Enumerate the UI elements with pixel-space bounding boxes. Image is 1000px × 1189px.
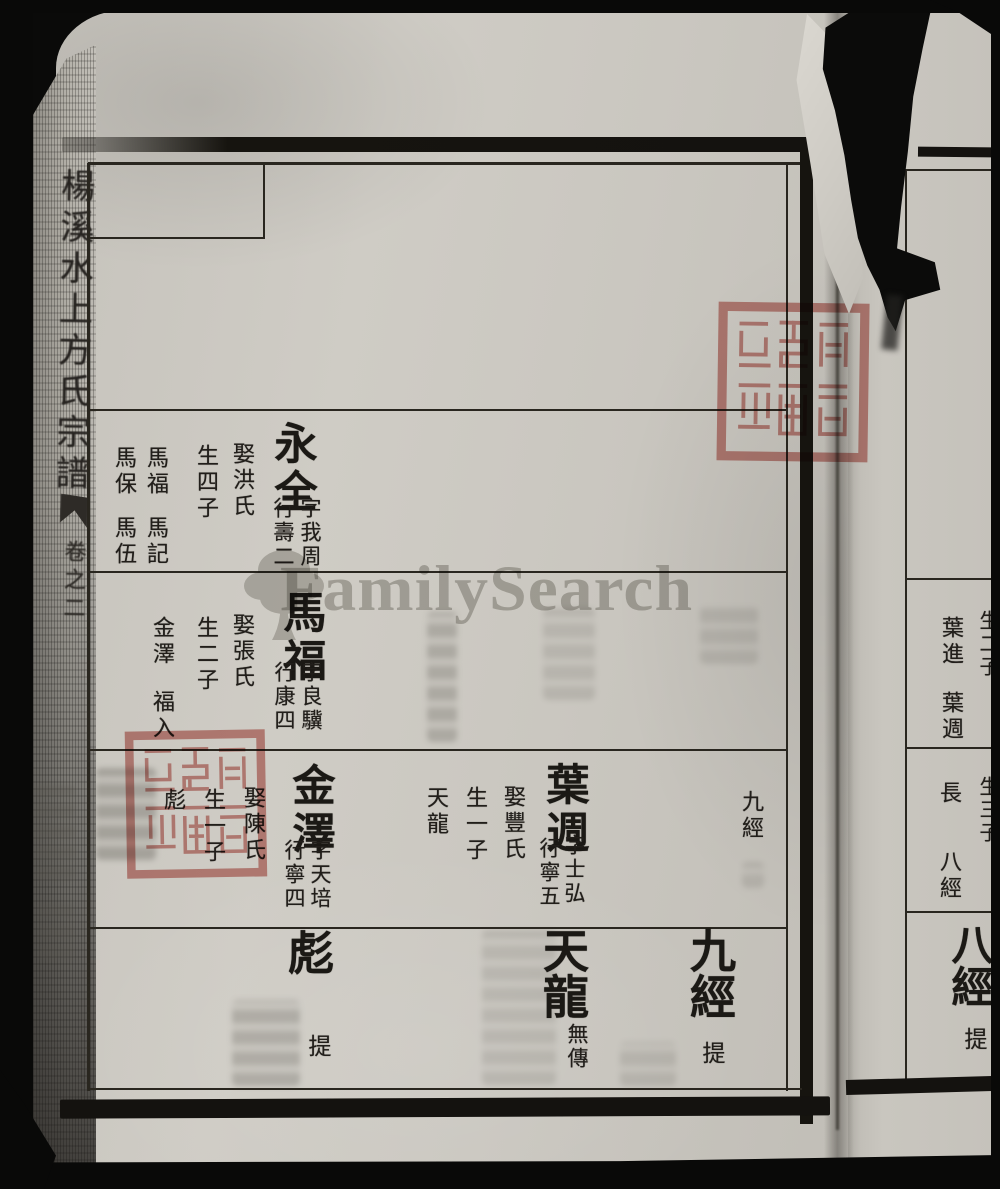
entry-rank: 行寧四: [283, 839, 304, 911]
bottom-border-bar: [60, 1096, 830, 1118]
entry-spouse: 娶豐氏: [502, 785, 524, 863]
right-page-divider: [906, 747, 992, 749]
eldest-label: 長: [938, 781, 960, 807]
bleedthrough-smudge: [620, 1042, 676, 1086]
entry-rank: 行康四: [273, 661, 294, 733]
right-page-divider: [906, 578, 992, 580]
entry-son: 八經: [938, 850, 960, 902]
bottom-rule: [88, 1088, 802, 1090]
right-page-top-bar: [918, 147, 992, 158]
entry-sons-label: 生四子: [195, 444, 217, 522]
bleedthrough-smudge: [742, 862, 764, 888]
entry-courtesy: 字天培: [309, 839, 330, 911]
bleedthrough-smudge: [700, 606, 758, 664]
scan-border: [0, 0, 1000, 13]
right-border-bar: [800, 140, 813, 1124]
familysearch-watermark: FamilySearch: [280, 552, 693, 627]
entry-rank: 行寧五: [538, 837, 559, 909]
entry-sons-label: 生二子: [195, 616, 217, 694]
entry-name: 九經: [686, 927, 732, 1019]
scan-border: [991, 0, 1000, 1189]
genealogy-scan: 楊溪水上方氏宗譜 卷之二 永全 字我周 行壽二 娶洪氏 生四子 馬福 馬記 馬保…: [0, 0, 1000, 1189]
entry-name: 八經: [947, 923, 989, 1007]
entry-sons-label: 生一子: [464, 786, 486, 864]
spine-worn-ink: [38, 900, 74, 960]
entry-name: 天龍: [539, 927, 585, 1019]
entry-courtesy: 字良驥: [300, 661, 321, 733]
entry-courtesy: 字士弘: [563, 834, 584, 906]
entry-note: 無傳: [566, 1023, 587, 1071]
entry-son: 葉進: [940, 616, 962, 668]
entry-note: 提: [700, 1041, 723, 1068]
entry-son: 天龍: [425, 786, 447, 838]
top-rule: [88, 162, 810, 165]
left-frame-rule: [87, 163, 90, 1091]
entry-note: 提: [306, 1034, 329, 1061]
band-divider-4: [88, 927, 787, 929]
entry-son: 葉週: [940, 691, 962, 743]
spine-volume-label: 卷之二: [61, 540, 85, 624]
band-divider-1: [88, 409, 787, 411]
spine-worn-ink: [34, 785, 76, 880]
entry-son: 金澤: [151, 616, 173, 668]
header-cell-rule: [88, 237, 265, 239]
bleedthrough-smudge: [232, 1000, 300, 1086]
right-page-divider: [906, 911, 992, 913]
entry-spouse: 娶洪氏: [231, 442, 253, 520]
entry-name: 彪: [284, 929, 330, 975]
entry-son: 馬伍: [113, 516, 135, 568]
entry-son: 馬保: [113, 446, 135, 498]
side-reference-name: 九經: [740, 790, 762, 842]
entry-note: 提: [962, 1027, 985, 1054]
page-edge-line: [836, 150, 839, 1130]
entry-son: 馬福: [145, 446, 167, 498]
entry-son: 馬記: [145, 516, 167, 568]
bleedthrough-smudge: [427, 612, 457, 742]
top-border-bar: [62, 137, 814, 152]
scan-border: [0, 0, 33, 1189]
spine-title: 楊溪水上方氏宗譜: [51, 168, 91, 497]
header-cell-rule: [263, 165, 265, 239]
collection-seal: [113, 728, 280, 886]
collection-seal: [715, 300, 871, 469]
right-page-frame-rule: [905, 171, 907, 1081]
